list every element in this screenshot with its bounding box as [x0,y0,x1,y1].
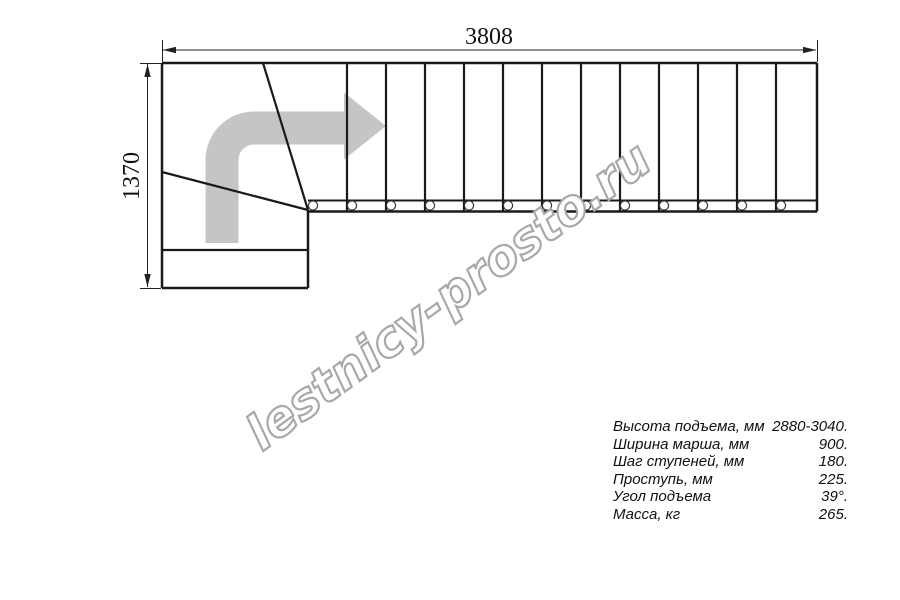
dim-arrow-down [144,274,150,287]
dimension-left: 1370 [119,64,161,289]
spec-row-width: Ширина марша, мм 900. [613,436,848,454]
dimension-top: 3808 [163,24,818,62]
spec-value: 39°. [821,488,848,506]
dim-arrow-right [803,47,816,53]
spec-row-mass: Масса, кг 265. [613,506,848,524]
spec-label: Высота подъема, мм [613,418,765,436]
spec-row-tread: Проступь, мм 225. [613,471,848,489]
spec-value: 225. [819,471,848,489]
spec-label: Угол подъема [613,488,711,506]
dim-arrow-left [163,47,176,53]
spec-label: Шаг ступеней, мм [613,453,744,471]
direction-arrow-icon [222,93,386,244]
spec-value: 265. [819,506,848,524]
spec-value: 180. [819,453,848,471]
dim-arrow-up [144,64,150,77]
stair-drawing-page: 3808 1370 lestnicy-prosto.ru Высота подъ… [0,0,900,600]
dimension-top-value: 3808 [465,24,513,50]
spec-table: Высота подъема, мм 2880-3040. Ширина мар… [613,418,848,524]
spec-value: 2880-3040. [772,418,848,436]
spec-row-rise: Шаг ступеней, мм 180. [613,453,848,471]
spec-label: Ширина марша, мм [613,436,749,454]
spec-value: 900. [819,436,848,454]
dimension-left-value: 1370 [119,152,145,200]
spec-label: Масса, кг [613,506,680,524]
spec-label: Проступь, мм [613,471,713,489]
spec-row-angle: Угол подъема 39°. [613,488,848,506]
spec-row-height: Высота подъема, мм 2880-3040. [613,418,848,436]
